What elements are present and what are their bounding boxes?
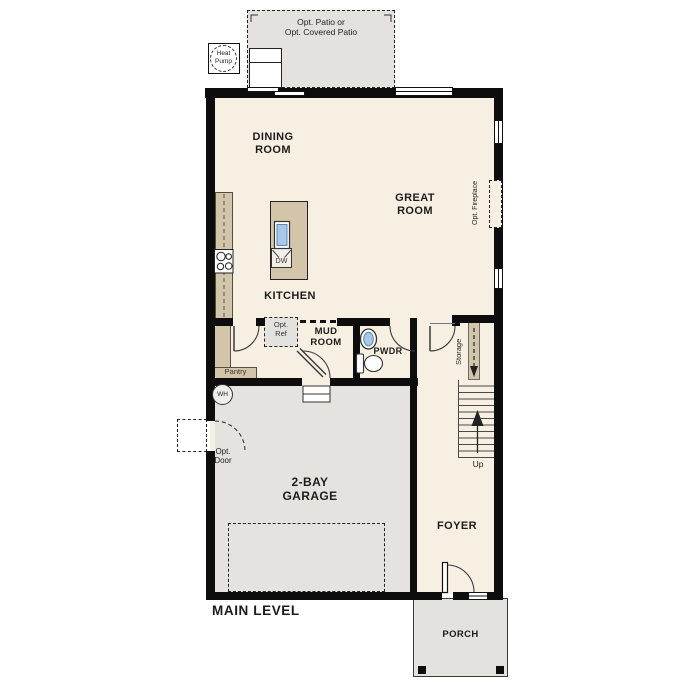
window-right-lower bbox=[494, 268, 503, 289]
garage-door-outline bbox=[228, 523, 385, 592]
storage-under-stair-strip bbox=[468, 321, 480, 380]
up-label: Up bbox=[462, 459, 494, 469]
wall-bottom-garage bbox=[206, 592, 442, 600]
pwdr-label: PWDR bbox=[362, 346, 414, 357]
pantry-label: Pantry bbox=[214, 368, 257, 377]
porch-label: PORCH bbox=[413, 629, 508, 640]
patio-steps bbox=[249, 48, 282, 88]
opt-door-stoop bbox=[177, 419, 207, 452]
opt-fireplace-label: Opt. Fireplace bbox=[472, 172, 484, 234]
wall-bottom-foyer-right bbox=[488, 592, 503, 600]
wall-kitchen-pantry bbox=[206, 318, 233, 326]
patio-step-line bbox=[250, 49, 281, 63]
window-top-greatroom bbox=[395, 87, 453, 96]
dining-room-label: DINING ROOM bbox=[223, 131, 323, 157]
kitchen-island bbox=[270, 201, 308, 280]
foyer-label: FOYER bbox=[417, 520, 497, 533]
wall-garage-top-right bbox=[330, 378, 418, 386]
kitchen-wall-counter bbox=[215, 192, 233, 320]
storage-label: Storage bbox=[455, 325, 466, 379]
wall-mud-pwdr-divider bbox=[353, 318, 360, 378]
porch-post-right bbox=[496, 666, 504, 674]
opt-fireplace-box bbox=[489, 180, 502, 228]
window-foyer-front bbox=[468, 592, 488, 600]
main-level-label: MAIN LEVEL bbox=[212, 603, 372, 619]
water-heater: WH bbox=[212, 384, 233, 405]
patio-label: Opt. Patio or Opt. Covered Patio bbox=[247, 17, 395, 37]
wall-foyer-west bbox=[410, 318, 417, 600]
opt-door-label: Opt. Door bbox=[206, 447, 240, 466]
kitchen-label: KITCHEN bbox=[240, 290, 340, 303]
heat-pump-label: Heat Pump bbox=[208, 50, 239, 65]
porch-post-left bbox=[418, 666, 426, 674]
dw-label: DW bbox=[271, 258, 292, 266]
wall-left-lower bbox=[206, 451, 215, 600]
wall-bottom-foyer-left bbox=[453, 592, 468, 600]
water-heater-label: WH bbox=[217, 391, 228, 398]
floor-plan: WH Opt. Patio or Opt. Covered Patio Heat… bbox=[0, 0, 687, 687]
sliding-patio-door-panel-right bbox=[274, 91, 305, 96]
wall-greatroom-south bbox=[337, 318, 390, 326]
window-right-upper bbox=[494, 120, 503, 144]
mud-room-label: MUD ROOM bbox=[298, 326, 354, 349]
garage-label: 2-BAY GARAGE bbox=[240, 475, 380, 504]
opt-ref-label: Opt. Ref bbox=[264, 321, 298, 339]
staircase bbox=[458, 380, 494, 458]
great-room-label: GREAT ROOM bbox=[365, 192, 465, 218]
